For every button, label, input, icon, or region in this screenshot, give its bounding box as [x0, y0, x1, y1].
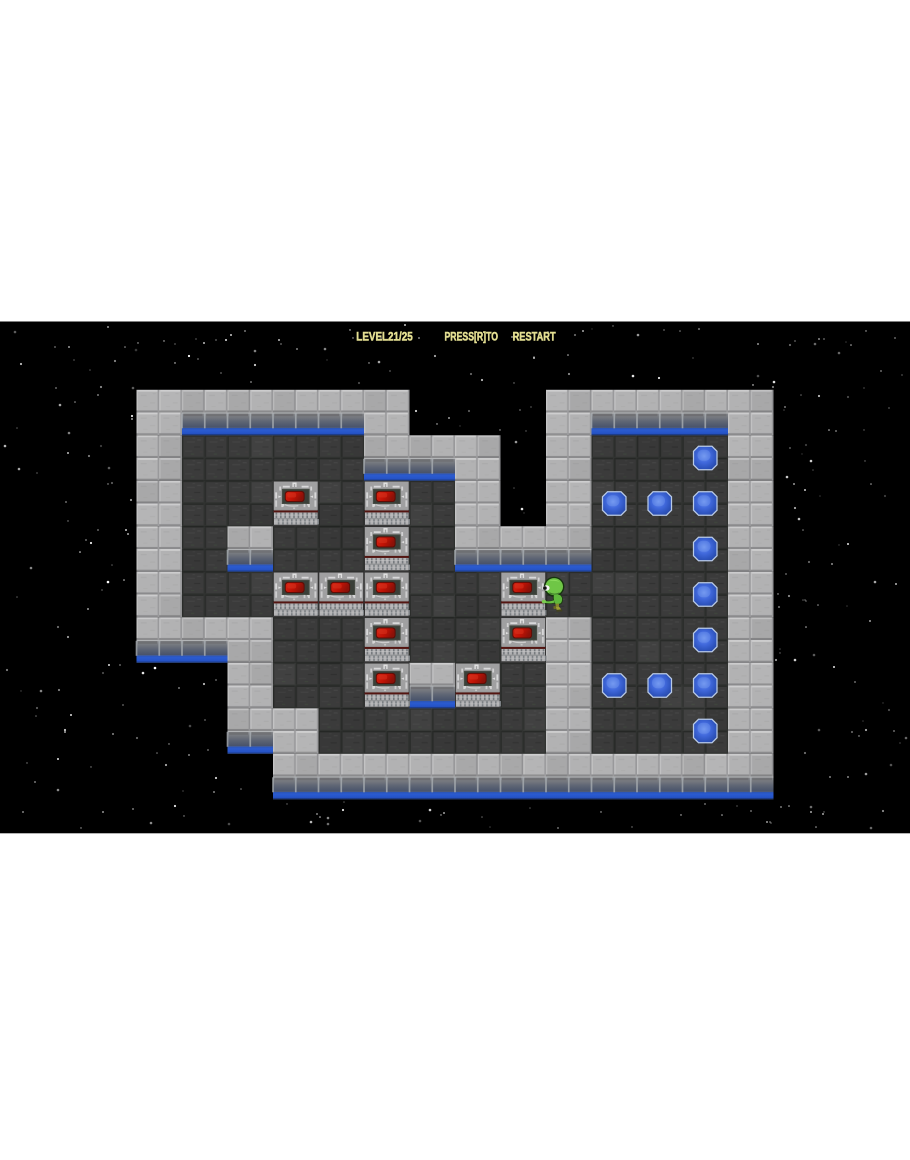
svg-text:LEVEL21/25: LEVEL21/25: [356, 330, 412, 344]
svg-text:PRESS[R]TO: PRESS[R]TO: [445, 330, 499, 344]
svg-text:RESTART: RESTART: [513, 330, 556, 344]
